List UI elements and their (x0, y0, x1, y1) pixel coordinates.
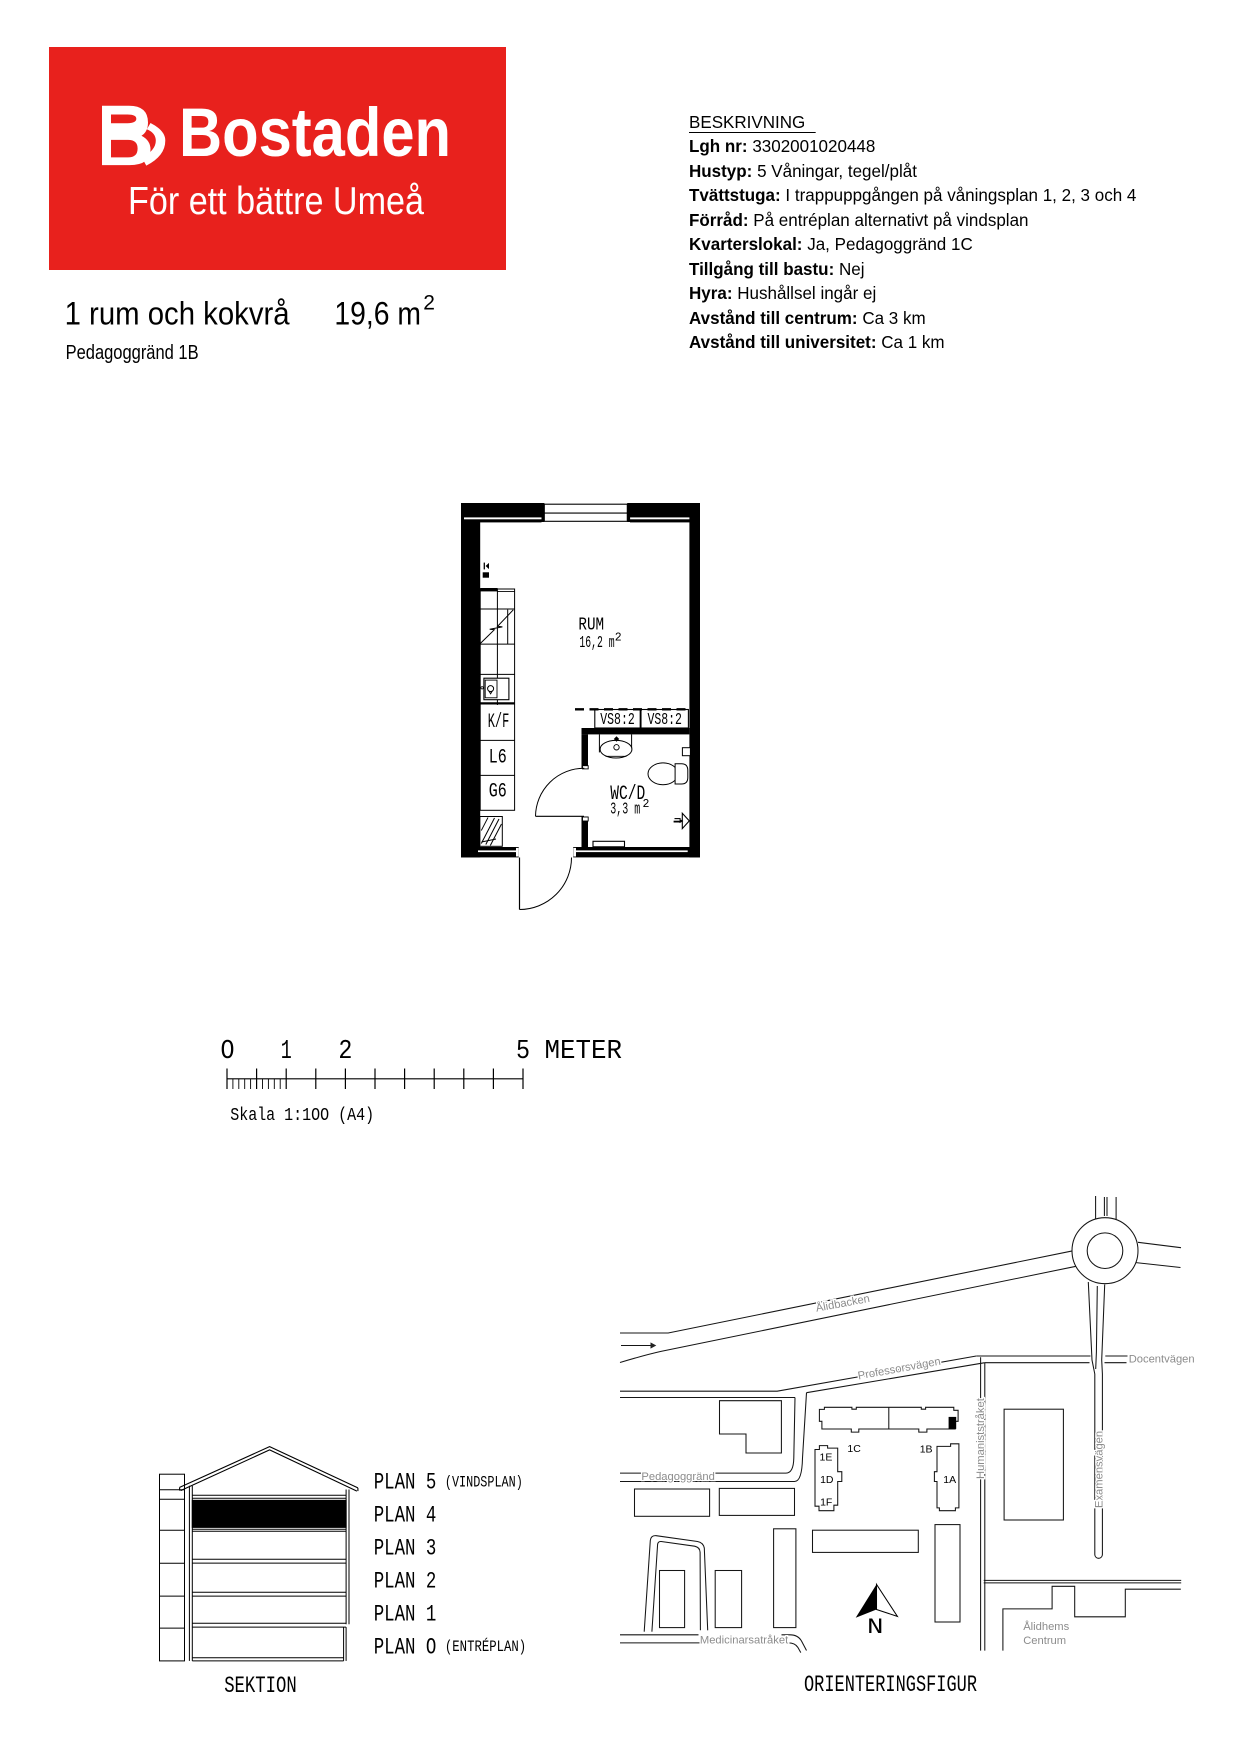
svg-text:O: O (221, 1037, 235, 1067)
svg-text:5: 5 (516, 1037, 530, 1067)
svg-text:Humaniststråket: Humaniststråket (975, 1397, 987, 1479)
svg-text:2: 2 (423, 292, 435, 315)
svg-text:ORIENTERINGSFIGUR: ORIENTERINGSFIGUR (804, 1672, 977, 1698)
svg-text:Ålidbacken: Ålidbacken (815, 1292, 871, 1315)
svg-text:1B: 1B (920, 1444, 933, 1456)
svg-text:2: 2 (615, 632, 622, 645)
svg-text:1A: 1A (943, 1474, 956, 1486)
svg-text:K/F: K/F (488, 711, 510, 734)
svg-text:Docentvägen: Docentvägen (1129, 1354, 1195, 1366)
svg-text:N: N (867, 1615, 884, 1640)
svg-text:Pedagoggränd 1B: Pedagoggränd 1B (66, 341, 199, 364)
svg-text:2: 2 (338, 1037, 352, 1067)
svg-text:VS8:2: VS8:2 (600, 711, 635, 730)
svg-text:Skala 1:1OO (A4): Skala 1:1OO (A4) (230, 1105, 374, 1126)
svg-text:METER: METER (545, 1037, 623, 1067)
svg-text:PLAN 5: PLAN 5 (374, 1470, 437, 1496)
svg-text:19,6 m: 19,6 m (334, 296, 421, 332)
svg-text:VS8:2: VS8:2 (647, 711, 682, 730)
svg-text:1C: 1C (847, 1443, 861, 1455)
svg-text:2: 2 (643, 798, 650, 811)
svg-text:(ENTRÉPLAN): (ENTRÉPLAN) (445, 1637, 526, 1656)
svg-text:L6: L6 (489, 747, 507, 770)
svg-text:1D: 1D (820, 1474, 834, 1486)
svg-text:Professorsvägen: Professorsvägen (857, 1356, 942, 1383)
svg-text:1 rum och kokvrå: 1 rum och kokvrå (65, 296, 290, 332)
svg-text:PLAN O: PLAN O (374, 1634, 437, 1660)
svg-text:Examensvägen: Examensvägen (1093, 1431, 1105, 1508)
svg-text:PLAN 3: PLAN 3 (374, 1536, 437, 1562)
svg-text:Ålidhems: Ålidhems (1023, 1620, 1069, 1633)
svg-text:PLAN 1: PLAN 1 (374, 1601, 437, 1627)
svg-text:1: 1 (281, 1037, 292, 1067)
svg-text:SEKTION: SEKTION (224, 1673, 297, 1699)
svg-text:Medicinarsatråket: Medicinarsatråket (700, 1634, 789, 1646)
svg-text:G6: G6 (489, 781, 507, 804)
svg-text:Centrum: Centrum (1023, 1635, 1066, 1647)
svg-text:PLAN 2: PLAN 2 (374, 1569, 437, 1595)
svg-text:1F: 1F (820, 1497, 832, 1509)
svg-text:PLAN 4: PLAN 4 (374, 1503, 437, 1529)
svg-text:(VINDSPLAN): (VINDSPLAN) (445, 1473, 523, 1491)
svg-text:RUM: RUM (578, 616, 604, 636)
svg-text:3,3 m: 3,3 m (610, 800, 640, 819)
svg-text:Pedagoggränd: Pedagoggränd (641, 1471, 714, 1483)
svg-text:För ett bättre Umeå: För ett bättre Umeå (128, 180, 425, 223)
svg-text:16,2 m: 16,2 m (579, 634, 614, 652)
svg-text:1E: 1E (820, 1451, 833, 1463)
svg-text:Bostaden: Bostaden (179, 94, 451, 171)
